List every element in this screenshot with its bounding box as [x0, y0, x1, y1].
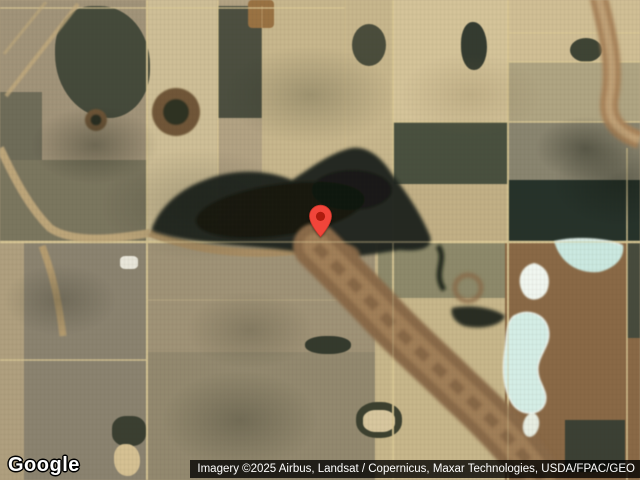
pond-ring — [85, 88, 200, 136]
terrain-layer — [0, 0, 640, 480]
attribution-bar: Imagery ©2025 Airbus, Landsat / Copernic… — [190, 460, 640, 478]
pin-dot — [315, 212, 324, 221]
satellite-imagery — [0, 0, 640, 480]
creek — [0, 2, 316, 336]
map-pin[interactable] — [309, 204, 332, 238]
map-viewport[interactable]: Google Imagery ©2025 Airbus, Landsat / C… — [0, 0, 640, 480]
attribution-text: Imagery ©2025 Airbus, Landsat / Copernic… — [197, 463, 635, 475]
lake — [503, 238, 623, 438]
google-logo[interactable]: Google — [8, 454, 80, 477]
